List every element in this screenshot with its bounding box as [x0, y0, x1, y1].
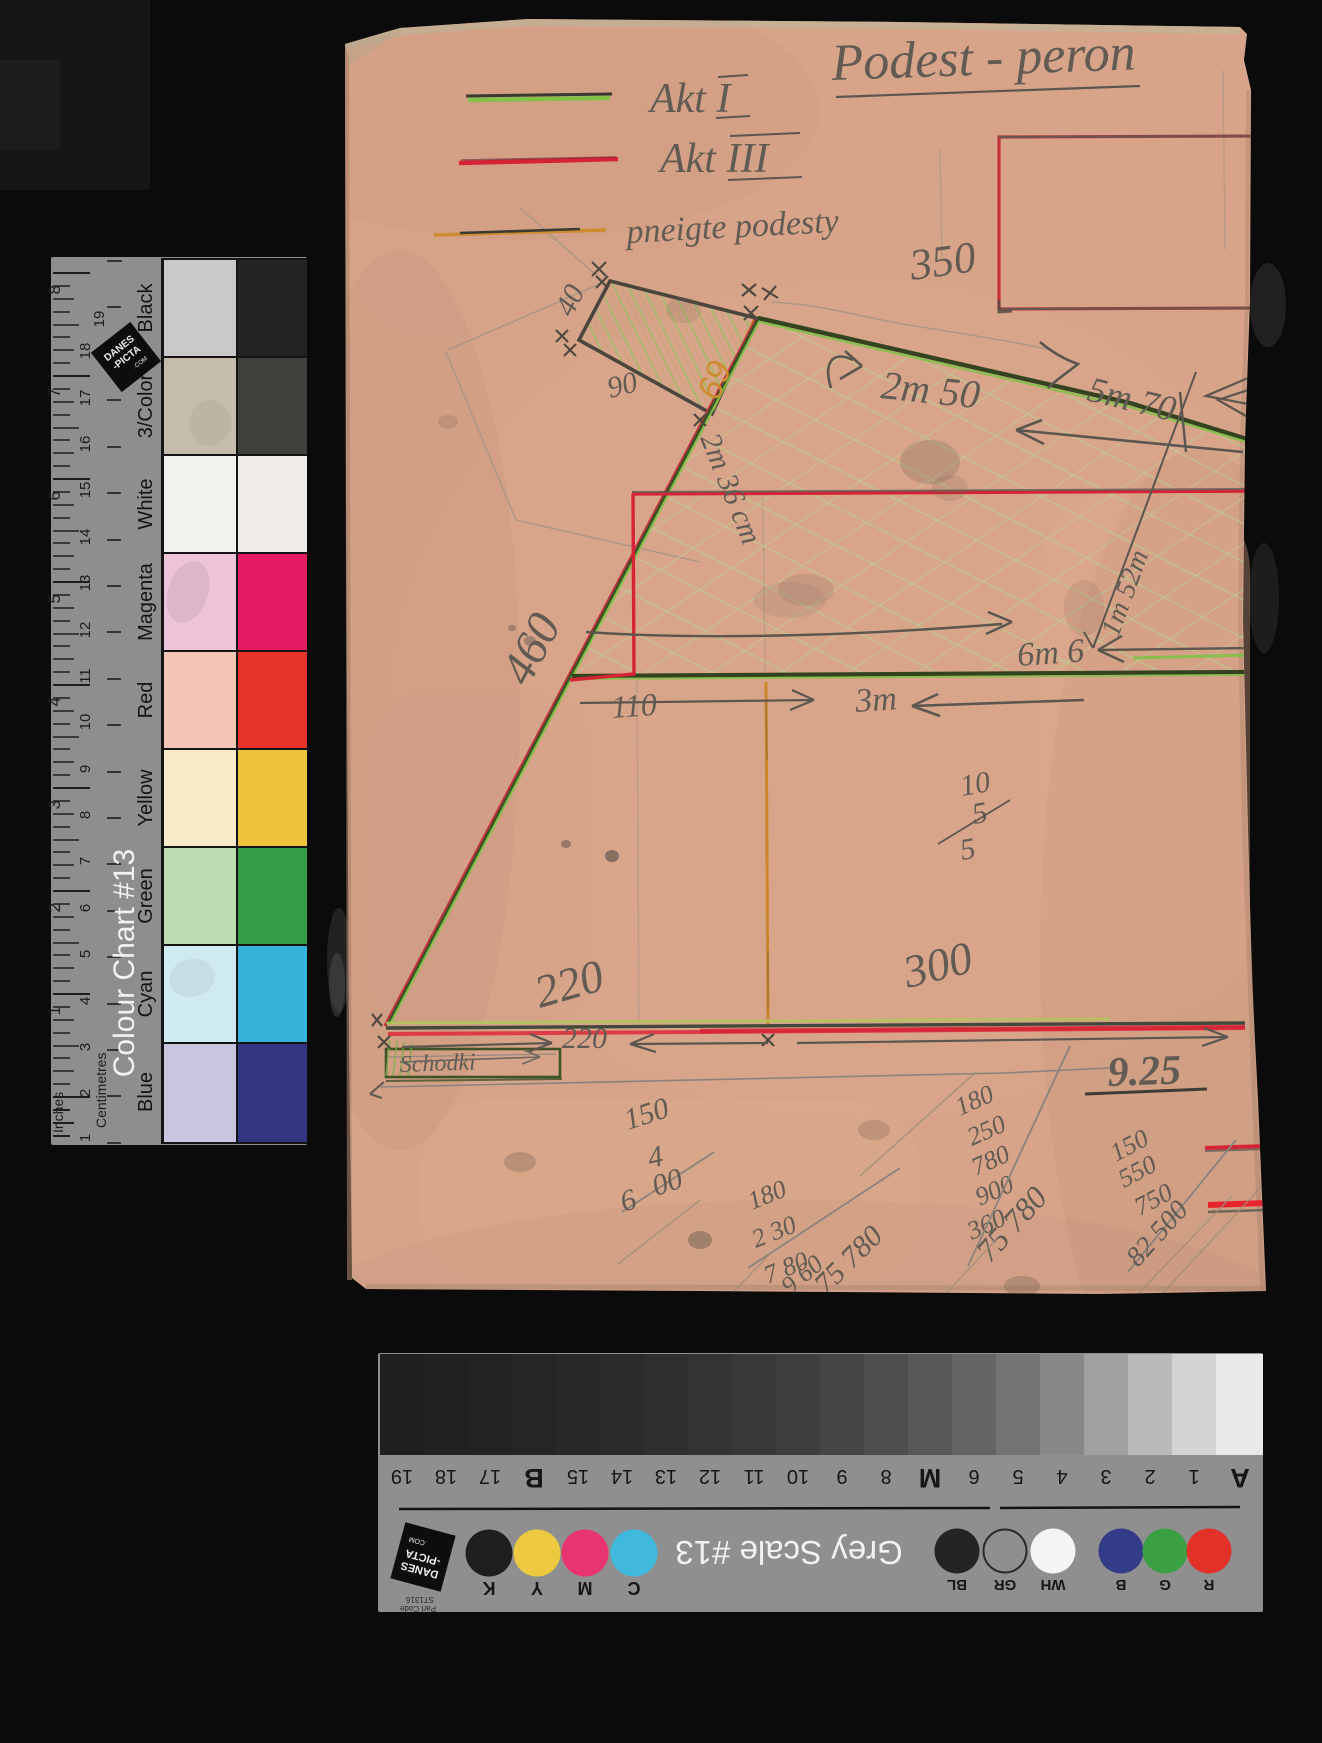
svg-text:5: 5: [45, 594, 64, 603]
svg-text:17: 17: [77, 390, 94, 407]
svg-text:K: K: [483, 1578, 496, 1598]
svg-text:6: 6: [968, 1465, 979, 1487]
svg-text:4: 4: [1056, 1465, 1067, 1487]
svg-text:8: 8: [77, 811, 94, 819]
svg-text:Podest - peron: Podest - peron: [829, 24, 1136, 92]
svg-text:2: 2: [1144, 1465, 1155, 1487]
svg-text:Y: Y: [531, 1578, 543, 1598]
svg-text:7: 7: [45, 388, 64, 397]
svg-text:3: 3: [1100, 1465, 1111, 1487]
svg-text:9.25: 9.25: [1107, 1047, 1182, 1096]
svg-text:Schodki: Schodki: [399, 1049, 476, 1078]
svg-text:1: 1: [1188, 1465, 1199, 1487]
svg-text:3: 3: [77, 1043, 94, 1051]
svg-text:14: 14: [611, 1465, 633, 1487]
svg-text:GR: GR: [994, 1576, 1017, 1593]
svg-text:9: 9: [77, 765, 94, 773]
svg-text:3/Color: 3/Color: [135, 373, 157, 438]
svg-text:6: 6: [45, 491, 64, 500]
svg-text:3m: 3m: [853, 680, 898, 720]
svg-text:16: 16: [77, 436, 94, 453]
svg-text:4: 4: [45, 697, 64, 706]
svg-text:Akt III: Akt III: [657, 136, 770, 182]
svg-text:7: 7: [77, 857, 94, 865]
svg-text:8: 8: [880, 1465, 891, 1487]
svg-text:13: 13: [655, 1465, 677, 1487]
svg-text:White: White: [135, 478, 157, 529]
svg-text:M: M: [578, 1578, 593, 1598]
svg-text:12: 12: [77, 622, 94, 639]
svg-text:17: 17: [479, 1465, 501, 1487]
svg-text:BL: BL: [947, 1576, 967, 1593]
svg-text:Inches: Inches: [50, 1092, 66, 1133]
svg-text:M: M: [919, 1463, 942, 1493]
svg-text:Black: Black: [135, 283, 157, 333]
svg-text:ST1316: ST1316: [405, 1595, 434, 1604]
svg-text:Yellow: Yellow: [135, 769, 157, 827]
svg-text:110: 110: [610, 686, 658, 725]
svg-text:11: 11: [77, 668, 94, 684]
svg-text:Grey Scale #13: Grey Scale #13: [675, 1534, 902, 1571]
svg-text:5: 5: [77, 950, 94, 958]
svg-text:Part Code: Part Code: [399, 1604, 436, 1613]
svg-text:3: 3: [45, 800, 64, 809]
svg-text:C: C: [628, 1578, 641, 1598]
svg-text:A: A: [1230, 1463, 1250, 1493]
svg-text:WH: WH: [1041, 1576, 1066, 1593]
svg-text:R: R: [1203, 1576, 1214, 1593]
svg-text:2: 2: [77, 1089, 94, 1097]
svg-text:Centimetres: Centimetres: [93, 1053, 109, 1128]
svg-text:18: 18: [435, 1465, 457, 1487]
svg-text:B: B: [524, 1463, 544, 1493]
svg-text:11: 11: [744, 1465, 765, 1487]
svg-text:19: 19: [391, 1465, 413, 1487]
svg-text:13: 13: [77, 575, 94, 592]
svg-text:5: 5: [1012, 1465, 1023, 1487]
svg-text:6: 6: [77, 904, 94, 912]
svg-text:15: 15: [567, 1465, 589, 1487]
svg-text:220: 220: [562, 1022, 607, 1055]
svg-text:4: 4: [77, 997, 94, 1005]
svg-text:Red: Red: [135, 682, 157, 719]
svg-text:10: 10: [787, 1465, 809, 1487]
svg-text:1: 1: [77, 1134, 94, 1142]
svg-text:8: 8: [45, 285, 64, 294]
svg-text:350: 350: [906, 232, 979, 290]
svg-text:Akt I: Akt I: [647, 76, 732, 122]
svg-text:19: 19: [91, 311, 108, 328]
svg-text:15: 15: [77, 482, 94, 499]
svg-text:1: 1: [45, 1006, 64, 1015]
svg-text:14: 14: [77, 529, 94, 546]
svg-text:10: 10: [77, 714, 94, 731]
svg-text:12: 12: [699, 1465, 721, 1487]
svg-text:18: 18: [77, 343, 94, 360]
svg-text:6m 6: 6m 6: [1016, 632, 1085, 674]
svg-text:Magenta: Magenta: [135, 562, 157, 641]
svg-text:9: 9: [836, 1465, 847, 1487]
svg-text:Colour Chart #13: Colour Chart #13: [108, 849, 141, 1077]
svg-text:G: G: [1159, 1576, 1171, 1593]
svg-text:2: 2: [45, 903, 64, 912]
svg-text:B: B: [1115, 1576, 1126, 1593]
